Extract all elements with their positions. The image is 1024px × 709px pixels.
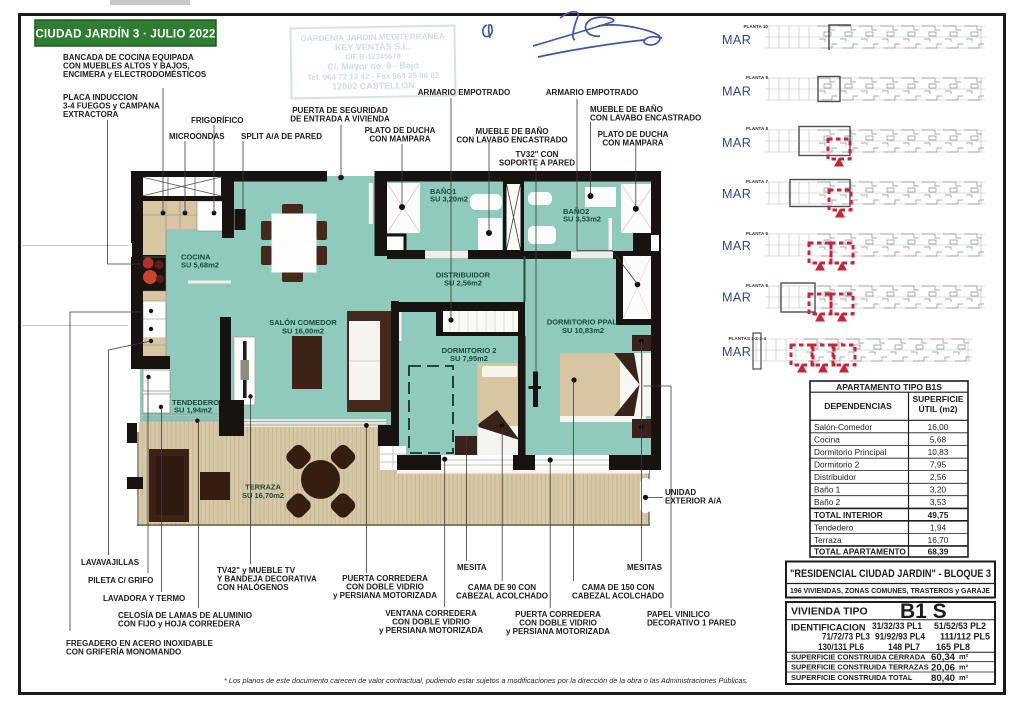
svg-text:130/131 PL6: 130/131 PL6 (818, 642, 864, 652)
svg-text:MAR: MAR (722, 85, 751, 99)
svg-text:C/. Mayor no. 8 - Bajo: C/. Mayor no. 8 - Bajo (327, 60, 419, 72)
svg-text:DEPENDENCIAS: DEPENDENCIAS (824, 401, 892, 411)
svg-text:51/52/53 PL2: 51/52/53 PL2 (934, 621, 986, 631)
svg-text:PLANTA 9: PLANTA 9 (746, 75, 768, 80)
svg-text:PLANTAS 1-2-3-4: PLANTAS 1-2-3-4 (729, 336, 767, 341)
svg-text:68,39: 68,39 (928, 547, 949, 557)
svg-text:PLATO DE DUCHACON MAMPARA: PLATO DE DUCHACON MAMPARA (365, 126, 436, 144)
svg-text:Cocina: Cocina (814, 435, 840, 445)
svg-text:PLATO DE DUCHACON MAMPARA: PLATO DE DUCHACON MAMPARA (598, 130, 669, 148)
svg-text:CAMA DE 90 CONCABEZAL ACOLCHAD: CAMA DE 90 CONCABEZAL ACOLCHADO (456, 583, 548, 601)
svg-text:148 PL7: 148 PL7 (888, 642, 920, 652)
svg-text:165 PL8: 165 PL8 (936, 642, 970, 652)
svg-text:MAR: MAR (722, 291, 751, 305)
svg-text:71/72/73 PL3: 71/72/73 PL3 (822, 632, 870, 642)
svg-text:FRIGORÍFICO: FRIGORÍFICO (191, 116, 243, 125)
svg-text:49,75: 49,75 (928, 510, 949, 520)
svg-text:Baño 2: Baño 2 (814, 497, 841, 507)
svg-text:MICROONDAS: MICROONDAS (169, 132, 225, 141)
svg-text:196 VIVIENDAS, ZONAS COMUNES,: 196 VIVIENDAS, ZONAS COMUNES, TRASTEROS … (790, 586, 990, 595)
svg-text:SPLIT A/A DE PARED: SPLIT A/A DE PARED (241, 132, 322, 141)
svg-text:SU 5,68m2: SU 5,68m2 (181, 261, 219, 270)
svg-text:PILETA C/ GRIFO: PILETA C/ GRIFO (88, 576, 153, 585)
svg-text:3,20: 3,20 (930, 485, 947, 495)
svg-text:5,68: 5,68 (930, 435, 947, 445)
svg-text:Tendedero: Tendedero (814, 522, 854, 532)
svg-text:Terraza: Terraza (814, 535, 842, 545)
svg-text:Dormitorio 2: Dormitorio 2 (814, 460, 860, 470)
svg-text:PLANTA 5: PLANTA 5 (746, 283, 768, 288)
svg-text:VIVIENDA TIPO: VIVIENDA TIPO (791, 606, 868, 618)
svg-text:PUERTA DE SEGURIDADDE ENTRADA: PUERTA DE SEGURIDADDE ENTRADA A VIVIENDA (290, 106, 390, 124)
svg-text:91/92/93 PL4: 91/92/93 PL4 (875, 632, 925, 642)
svg-text:MAR: MAR (722, 239, 751, 253)
svg-text:PLANTA 10: PLANTA 10 (743, 24, 768, 29)
svg-text:SU 7,95m2: SU 7,95m2 (450, 354, 488, 363)
svg-text:Distribuidor: Distribuidor (814, 472, 856, 482)
svg-text:VENTANA CORREDERACON DOBLE VID: VENTANA CORREDERACON DOBLE VIDRIOy PERSI… (379, 609, 483, 635)
svg-text:m²: m² (959, 663, 969, 672)
svg-text:SU 3,53m2: SU 3,53m2 (563, 215, 601, 224)
svg-text:m²: m² (959, 652, 969, 661)
svg-text:* Los planos de este documento: * Los planos de este documento carecen d… (224, 676, 748, 685)
svg-text:SU 16,70m2: SU 16,70m2 (242, 491, 284, 500)
svg-text:SUPERFICIE CONSTRUIDA CERRADA: SUPERFICIE CONSTRUIDA CERRADA (791, 652, 926, 661)
svg-text:MAR: MAR (722, 136, 751, 150)
svg-text:12002 CASTELLON: 12002 CASTELLON (332, 80, 415, 91)
svg-text:LAVADORA Y TERMO: LAVADORA Y TERMO (103, 594, 185, 603)
svg-text:MAR: MAR (722, 33, 751, 47)
svg-text:LAVAVAJILLAS: LAVAVAJILLAS (81, 558, 140, 567)
svg-text:31/32/33 PL1: 31/32/33 PL1 (872, 621, 922, 631)
svg-text:16,00: 16,00 (928, 422, 949, 432)
svg-text:CAMA DE 150 CONCABEZAL ACOLCHA: CAMA DE 150 CONCABEZAL ACOLCHADO (572, 583, 664, 601)
svg-text:PLANTA 8: PLANTA 8 (746, 126, 768, 131)
svg-text:MESITAS: MESITAS (627, 563, 663, 572)
svg-text:MESITA: MESITA (457, 563, 487, 572)
svg-text:SUPERFICIE CONSTRUIDA TERRAZAS: SUPERFICIE CONSTRUIDA TERRAZAS (791, 663, 929, 672)
svg-text:PLANTA 6: PLANTA 6 (746, 231, 768, 236)
svg-text:TOTAL INTERIOR: TOTAL INTERIOR (814, 510, 883, 520)
svg-text:Baño 1: Baño 1 (814, 485, 841, 495)
svg-text:APARTAMENTO TIPO B1S: APARTAMENTO TIPO B1S (836, 382, 942, 392)
svg-text:SU 10,83m2: SU 10,83m2 (562, 326, 604, 335)
svg-text:PUERTA CORREDERACON DOBLE VIDR: PUERTA CORREDERACON DOBLE VIDRIOy PERSIA… (333, 574, 437, 600)
svg-text:1,94: 1,94 (930, 522, 947, 532)
svg-text:MAR: MAR (722, 345, 751, 359)
svg-text:3,53: 3,53 (930, 497, 947, 507)
svg-text:MAR: MAR (722, 187, 751, 201)
svg-text:7,95: 7,95 (930, 460, 947, 470)
svg-text:SU 1,94m2: SU 1,94m2 (174, 406, 212, 415)
svg-text:Salón-Comedor: Salón-Comedor (814, 422, 872, 432)
svg-text:TOTAL APARTAMENTO: TOTAL APARTAMENTO (814, 547, 906, 557)
svg-text:111/112 PL5: 111/112 PL5 (940, 632, 990, 642)
svg-text:2,56: 2,56 (930, 472, 947, 482)
svg-text:SU 2,56m2: SU 2,56m2 (444, 279, 482, 288)
svg-text:ÚTIL (m2): ÚTIL (m2) (918, 403, 957, 414)
svg-text:PUERTA CORREDERACON DOBLE VIDR: PUERTA CORREDERACON DOBLE VIDRIOy PERSIA… (506, 610, 610, 636)
svg-text:Dormitorio Principal: Dormitorio Principal (814, 447, 887, 457)
svg-text:ARMARIO EMPOTRADO: ARMARIO EMPOTRADO (546, 88, 638, 97)
svg-text:SUPERFICIE CONSTRUIDA TOTAL: SUPERFICIE CONSTRUIDA TOTAL (791, 673, 913, 682)
svg-text:CELOSÍA DE LAMAS DE ALUMINIOCO: CELOSÍA DE LAMAS DE ALUMINIOCON FIJO y H… (118, 611, 252, 629)
svg-text:"RESIDENCIAL CIUDAD JARDIN" -: "RESIDENCIAL CIUDAD JARDIN" - BLOQUE 3 (790, 568, 991, 580)
svg-text:16,70: 16,70 (928, 535, 949, 545)
svg-text:PLANTA 7: PLANTA 7 (746, 179, 768, 184)
svg-text:80,40: 80,40 (931, 673, 955, 684)
svg-text:m²: m² (959, 673, 969, 682)
svg-text:BANCADA DE COCINA EQUIPADACON: BANCADA DE COCINA EQUIPADACON MUEBLES AL… (63, 53, 207, 79)
svg-text:SU 16,00m2: SU 16,00m2 (282, 327, 324, 336)
svg-text:SU 3,20m2: SU 3,20m2 (430, 195, 468, 204)
svg-text:SUPERFICIE: SUPERFICIE (912, 394, 963, 404)
svg-text:CIUDAD JARDÍN 3 · JULIO 2022: CIUDAD JARDÍN 3 · JULIO 2022 (35, 28, 215, 41)
svg-text:10,83: 10,83 (928, 447, 949, 457)
